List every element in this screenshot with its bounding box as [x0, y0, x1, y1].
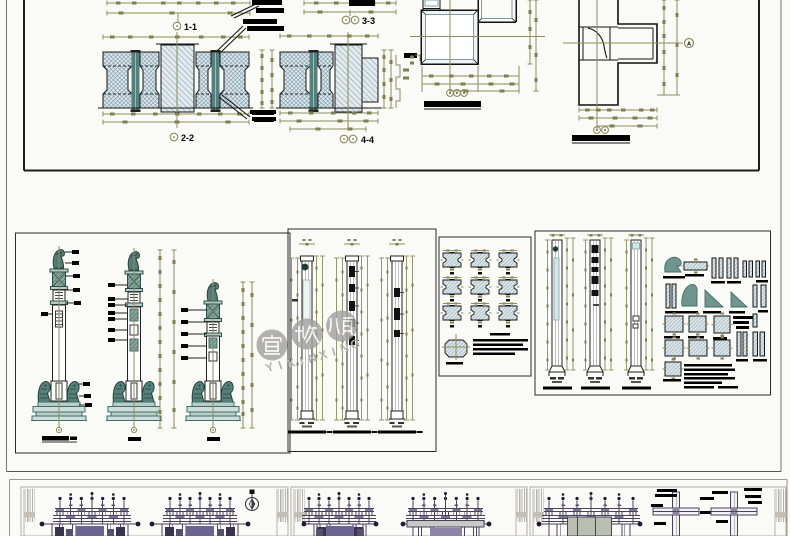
- svg-text:1-1: 1-1: [184, 22, 197, 32]
- svg-text:3-3: 3-3: [362, 16, 375, 26]
- svg-text:4-4: 4-4: [361, 135, 374, 145]
- svg-text:A: A: [687, 42, 691, 48]
- svg-text:2-2: 2-2: [181, 133, 194, 143]
